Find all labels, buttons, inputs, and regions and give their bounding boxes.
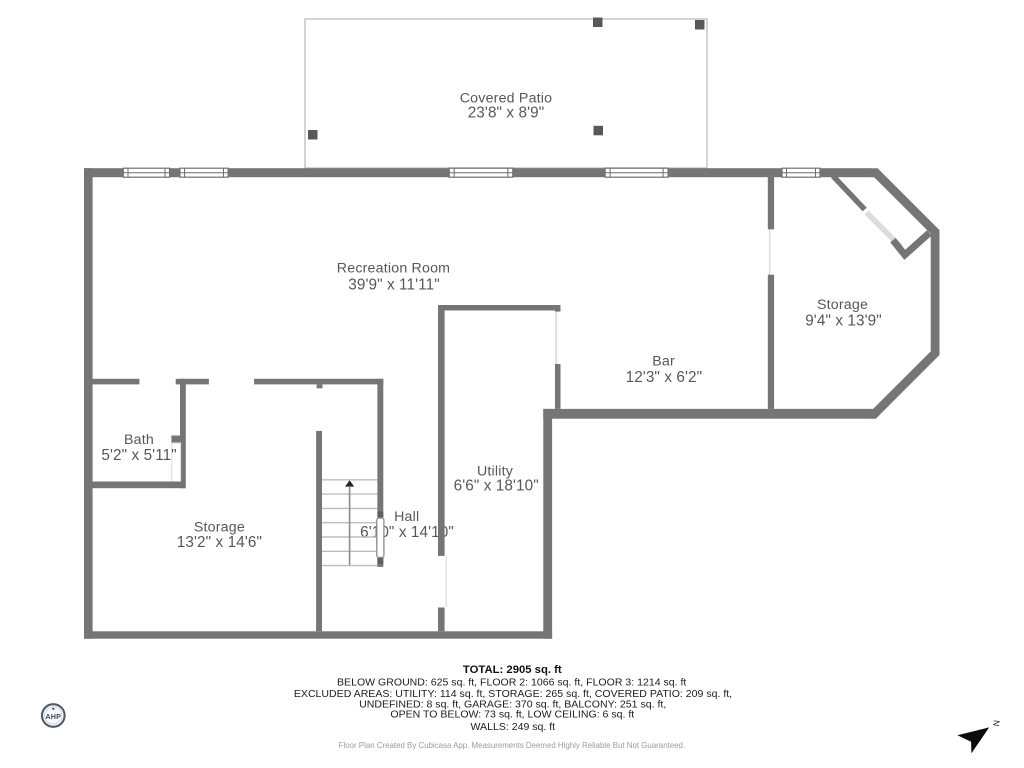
- svg-text:OPEN TO BELOW: 73 sq. ft, LOW: OPEN TO BELOW: 73 sq. ft, LOW CEILING: 6…: [390, 709, 634, 721]
- svg-text:6'6" x 18'10": 6'6" x 18'10": [454, 477, 539, 494]
- svg-text:AHP: AHP: [45, 712, 61, 721]
- svg-text:Bar: Bar: [652, 353, 675, 369]
- svg-text:BELOW GROUND: 625 sq. ft, FLOO: BELOW GROUND: 625 sq. ft, FLOOR 2: 1066 …: [337, 676, 686, 688]
- svg-text:Recreation Room: Recreation Room: [337, 260, 450, 276]
- svg-text:12'3" x 6'2": 12'3" x 6'2": [626, 369, 703, 386]
- svg-text:WALLS: 249 sq. ft: WALLS: 249 sq. ft: [470, 721, 555, 733]
- svg-text:13'2" x 14'6": 13'2" x 14'6": [177, 534, 262, 551]
- svg-text:Storage: Storage: [817, 297, 868, 313]
- svg-text:Hall: Hall: [394, 509, 419, 525]
- svg-text:Floor Plan Created By Cubicasa: Floor Plan Created By Cubicasa App. Meas…: [339, 741, 686, 750]
- svg-text:Bath: Bath: [124, 432, 154, 448]
- svg-text:TOTAL: 2905 sq. ft: TOTAL: 2905 sq. ft: [463, 664, 562, 676]
- svg-text:N: N: [991, 720, 1002, 727]
- svg-text:23'8" x 8'9": 23'8" x 8'9": [468, 105, 545, 122]
- svg-text:39'9" x 11'11": 39'9" x 11'11": [348, 276, 440, 293]
- svg-text:9'4" x 13'9": 9'4" x 13'9": [805, 312, 882, 329]
- svg-text:5'2" x 5'11": 5'2" x 5'11": [101, 447, 176, 464]
